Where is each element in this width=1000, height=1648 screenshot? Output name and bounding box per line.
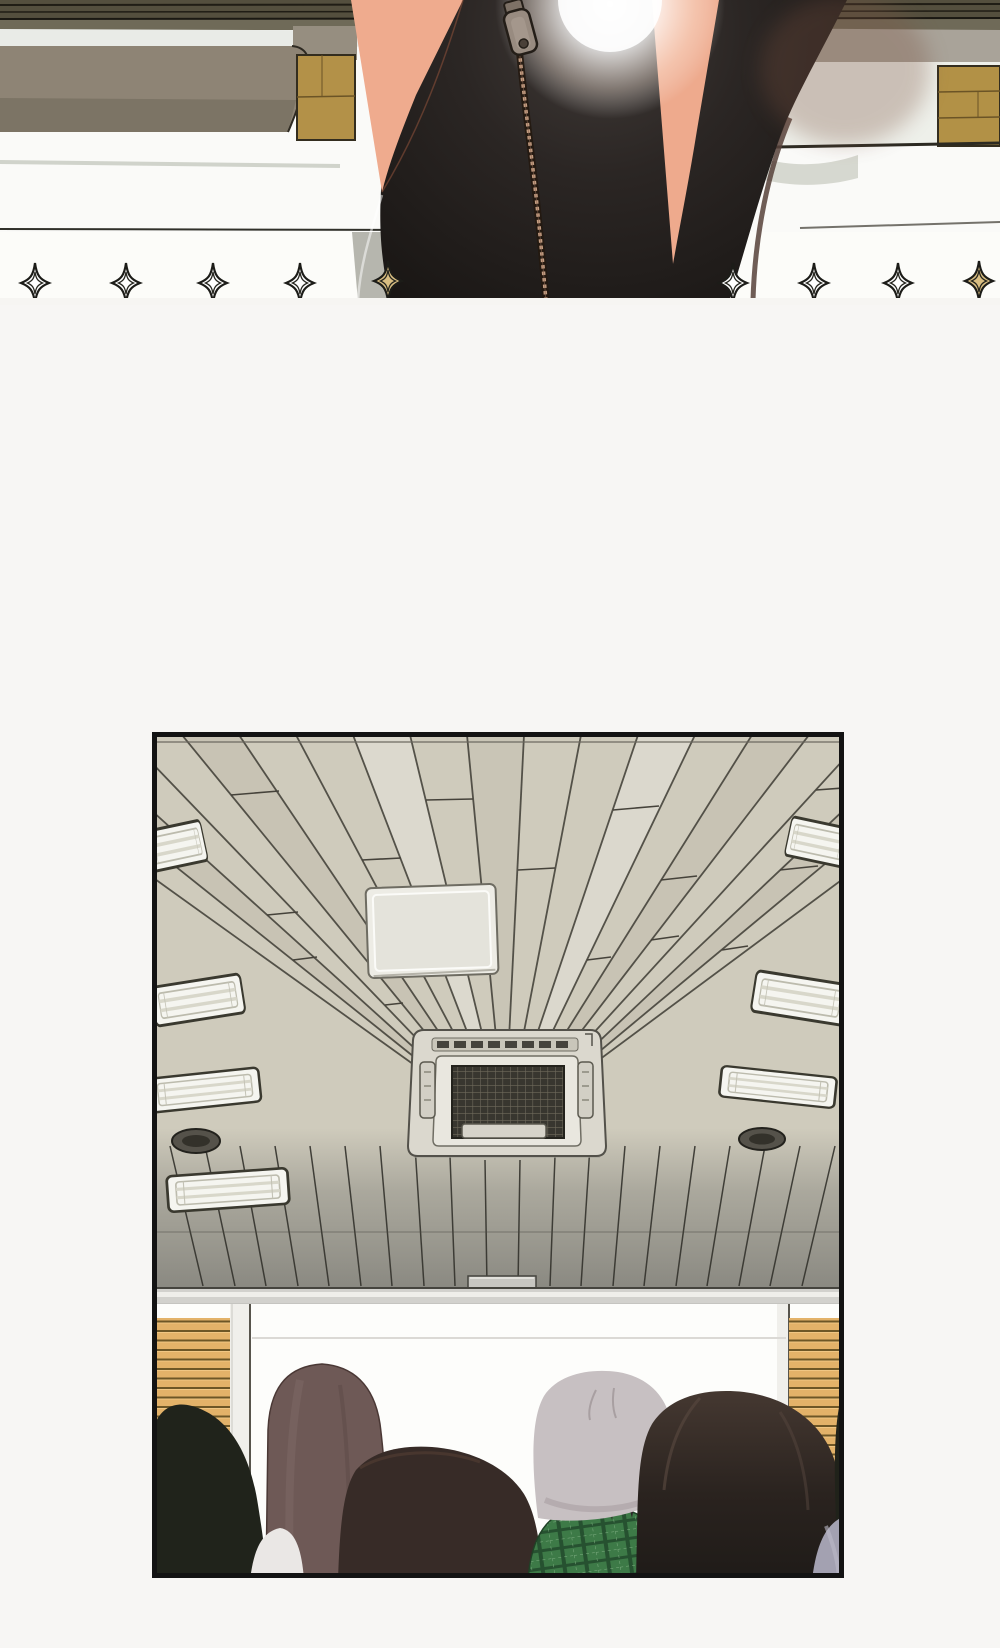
panel-top-art — [0, 0, 1000, 305]
wood-block-left — [297, 55, 355, 140]
air-conditioner — [408, 1030, 606, 1158]
wood-block-right — [938, 66, 1000, 146]
ceiling-access-panel — [366, 884, 499, 978]
leg-sheen — [760, 0, 930, 145]
panel-top — [0, 0, 1000, 305]
comic-page — [0, 0, 1000, 1648]
panel-bottom-fade — [0, 298, 1000, 305]
panel-bottom-art — [157, 737, 839, 1573]
panel-bottom — [152, 732, 844, 1578]
